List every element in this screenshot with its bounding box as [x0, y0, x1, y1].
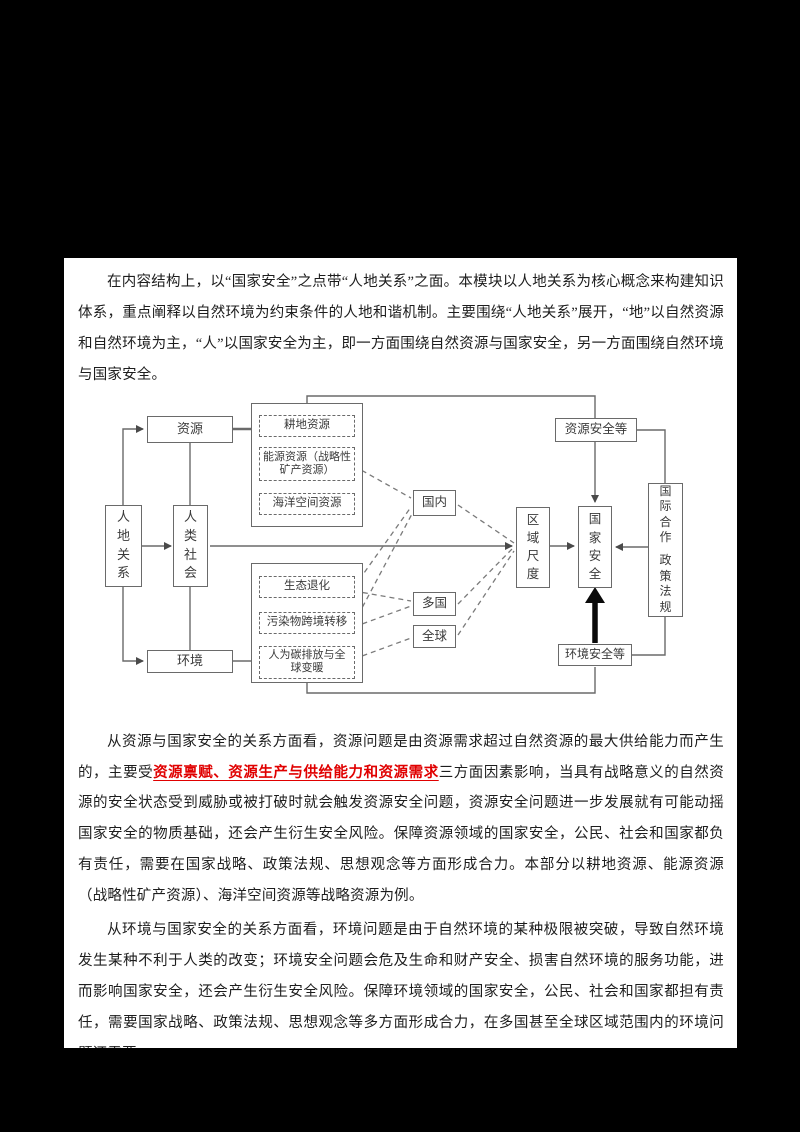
node-farmland-label: 耕地资源	[284, 419, 330, 432]
node-environment-security: 环境安全等	[558, 644, 632, 666]
node-national-security: 国家安全	[578, 506, 612, 588]
text-column: 在内容结构上，以“国家安全”之点带“人地关系”之面。本模块以人地关系为核心概念来…	[78, 267, 724, 1048]
node-environment-security-label: 环境安全等	[565, 648, 625, 662]
node-energy-resources: 能源资源（战略性矿产资源）	[259, 447, 355, 481]
node-intl-cooperation-label: 国际合作	[659, 484, 672, 546]
node-ecological-label: 生态退化	[284, 580, 330, 593]
thick-up-arrow	[585, 587, 605, 643]
paragraph-2-after: 三方面因素影响，当具有战略意义的自然资源的安全状态受到威胁或被打破时就会触发资源…	[78, 765, 724, 905]
node-regional-scale-label: 区域尺度	[526, 511, 539, 584]
node-ecological-degradation: 生态退化	[259, 576, 355, 598]
node-carbon-warming: 人为碳排放与全球变暖	[259, 646, 355, 679]
node-human-society-label: 人类社会	[184, 508, 198, 583]
node-marine-space-resources: 海洋空间资源	[259, 493, 355, 515]
node-regional-scale: 区域尺度	[516, 507, 550, 588]
paragraph-1-text: 在内容结构上，以“国家安全”之点带“人地关系”之面。本模块以人地关系为核心概念来…	[78, 274, 724, 383]
node-farmland-resources: 耕地资源	[259, 415, 355, 437]
node-marine-label: 海洋空间资源	[273, 497, 342, 510]
node-human-society: 人类社会	[173, 505, 208, 587]
node-global: 全球	[413, 625, 456, 648]
paragraph-2: 从资源与国家安全的关系方面看，资源问题是由资源需求超过自然资源的最大供给能力而产…	[78, 727, 724, 912]
node-energy-label: 能源资源（战略性矿产资源）	[263, 451, 351, 476]
node-resource-security: 资源安全等	[555, 418, 637, 442]
screenshot-root: { "page": { "paragraph1": "在内容结构上，以“国家安全…	[0, 0, 800, 1132]
node-carbon-label: 人为碳排放与全球变暖	[264, 649, 350, 674]
node-human-land-relation: 人地关系	[105, 505, 142, 587]
paragraph-3-text: 从环境与国家安全的关系方面看，环境问题是由于自然环境的某种极限被突破，导致自然环…	[78, 922, 724, 1048]
concept-diagram: 人地关系 人类社会 资源 环境 耕地资源 能源资源（战略性矿产资源） 海洋空间资…	[90, 395, 736, 717]
node-global-label: 全球	[422, 629, 447, 643]
node-resource-security-label: 资源安全等	[565, 422, 628, 436]
node-multi-country-label: 多国	[422, 596, 447, 610]
node-national-security-label: 国家安全	[588, 510, 601, 583]
node-pollution-transfer: 污染物跨境转移	[259, 612, 355, 634]
paragraph-1: 在内容结构上，以“国家安全”之点带“人地关系”之面。本模块以人地关系为核心概念来…	[78, 267, 724, 391]
document-page: 在内容结构上，以“国家安全”之点带“人地关系”之面。本模块以人地关系为核心概念来…	[64, 258, 737, 1048]
node-environment-label: 环境	[177, 654, 203, 669]
node-domestic: 国内	[413, 490, 456, 516]
node-domestic-label: 国内	[422, 495, 447, 509]
node-policy-regulation-label: 政策法规	[659, 553, 672, 615]
node-intl-cooperation-policy: 国际合作 政策法规	[648, 483, 683, 617]
node-resources: 资源	[147, 416, 233, 443]
node-environment: 环境	[147, 650, 233, 673]
paragraph-3: 从环境与国家安全的关系方面看，环境问题是由于自然环境的某种极限被突破，导致自然环…	[78, 915, 724, 1048]
highlighted-red-text: 资源禀赋、资源生产与供给能力和资源需求	[153, 765, 439, 781]
node-pollution-label: 污染物跨境转移	[267, 616, 348, 629]
node-human-land-label: 人地关系	[117, 508, 131, 583]
node-multi-country: 多国	[413, 592, 456, 616]
node-resources-label: 资源	[177, 422, 203, 437]
